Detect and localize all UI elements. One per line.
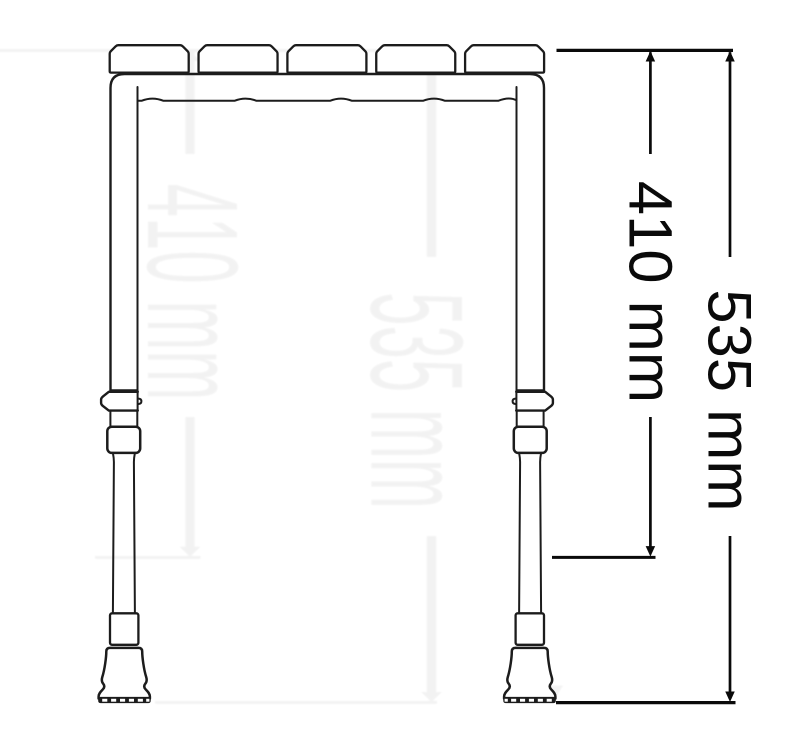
svg-text:535 mm: 535 mm — [695, 289, 764, 511]
svg-text:535 mm: 535 mm — [343, 292, 491, 509]
svg-text:410 mm: 410 mm — [120, 184, 264, 401]
svg-text:410 mm: 410 mm — [616, 181, 685, 403]
